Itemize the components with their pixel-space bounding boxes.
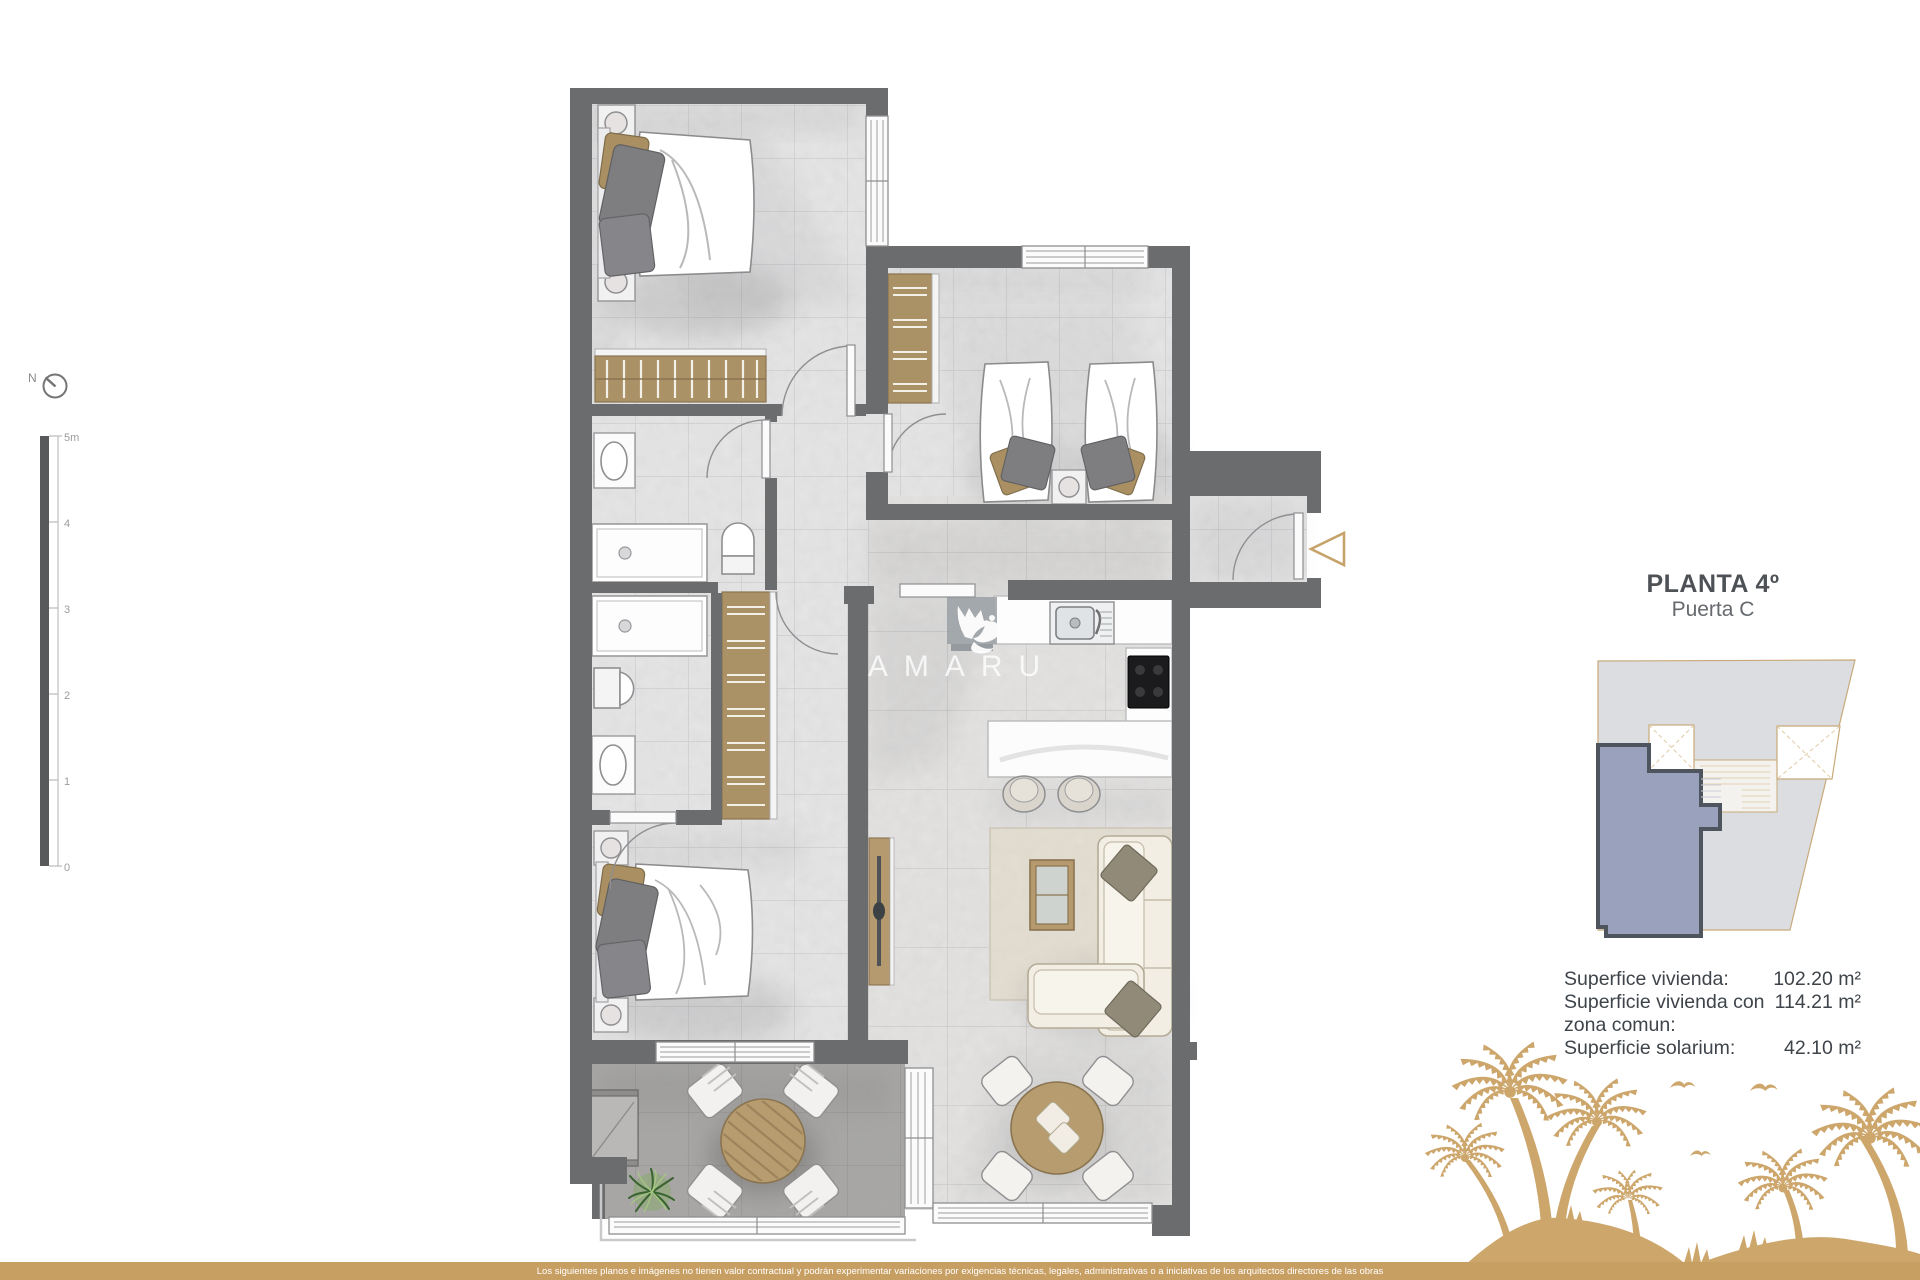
svg-text:114.21 m²: 114.21 m² bbox=[1775, 991, 1862, 1013]
svg-text:2: 2 bbox=[64, 690, 70, 702]
svg-text:Superfice vivienda:: Superfice vivienda: bbox=[1564, 968, 1729, 990]
svg-text:0: 0 bbox=[64, 862, 70, 874]
svg-text:Superficie solarium:: Superficie solarium: bbox=[1564, 1037, 1735, 1059]
svg-text:zona comun:: zona comun: bbox=[1564, 1014, 1676, 1036]
svg-text:AMARU: AMARU bbox=[868, 650, 1056, 683]
svg-text:Superficie vivienda con: Superficie vivienda con bbox=[1564, 991, 1765, 1013]
svg-text:1: 1 bbox=[64, 776, 70, 788]
svg-text:Los siguientes planos e imágen: Los siguientes planos e imágenes no tien… bbox=[537, 1266, 1384, 1277]
svg-text:102.20 m²: 102.20 m² bbox=[1773, 968, 1861, 990]
svg-text:5m: 5m bbox=[64, 432, 79, 444]
svg-text:N: N bbox=[28, 371, 37, 385]
svg-text:4: 4 bbox=[64, 518, 70, 530]
svg-text:3: 3 bbox=[64, 604, 70, 616]
svg-text:42.10 m²: 42.10 m² bbox=[1784, 1037, 1861, 1059]
svg-text:Puerta C: Puerta C bbox=[1672, 598, 1755, 621]
svg-text:PLANTA 4º: PLANTA 4º bbox=[1646, 570, 1779, 598]
